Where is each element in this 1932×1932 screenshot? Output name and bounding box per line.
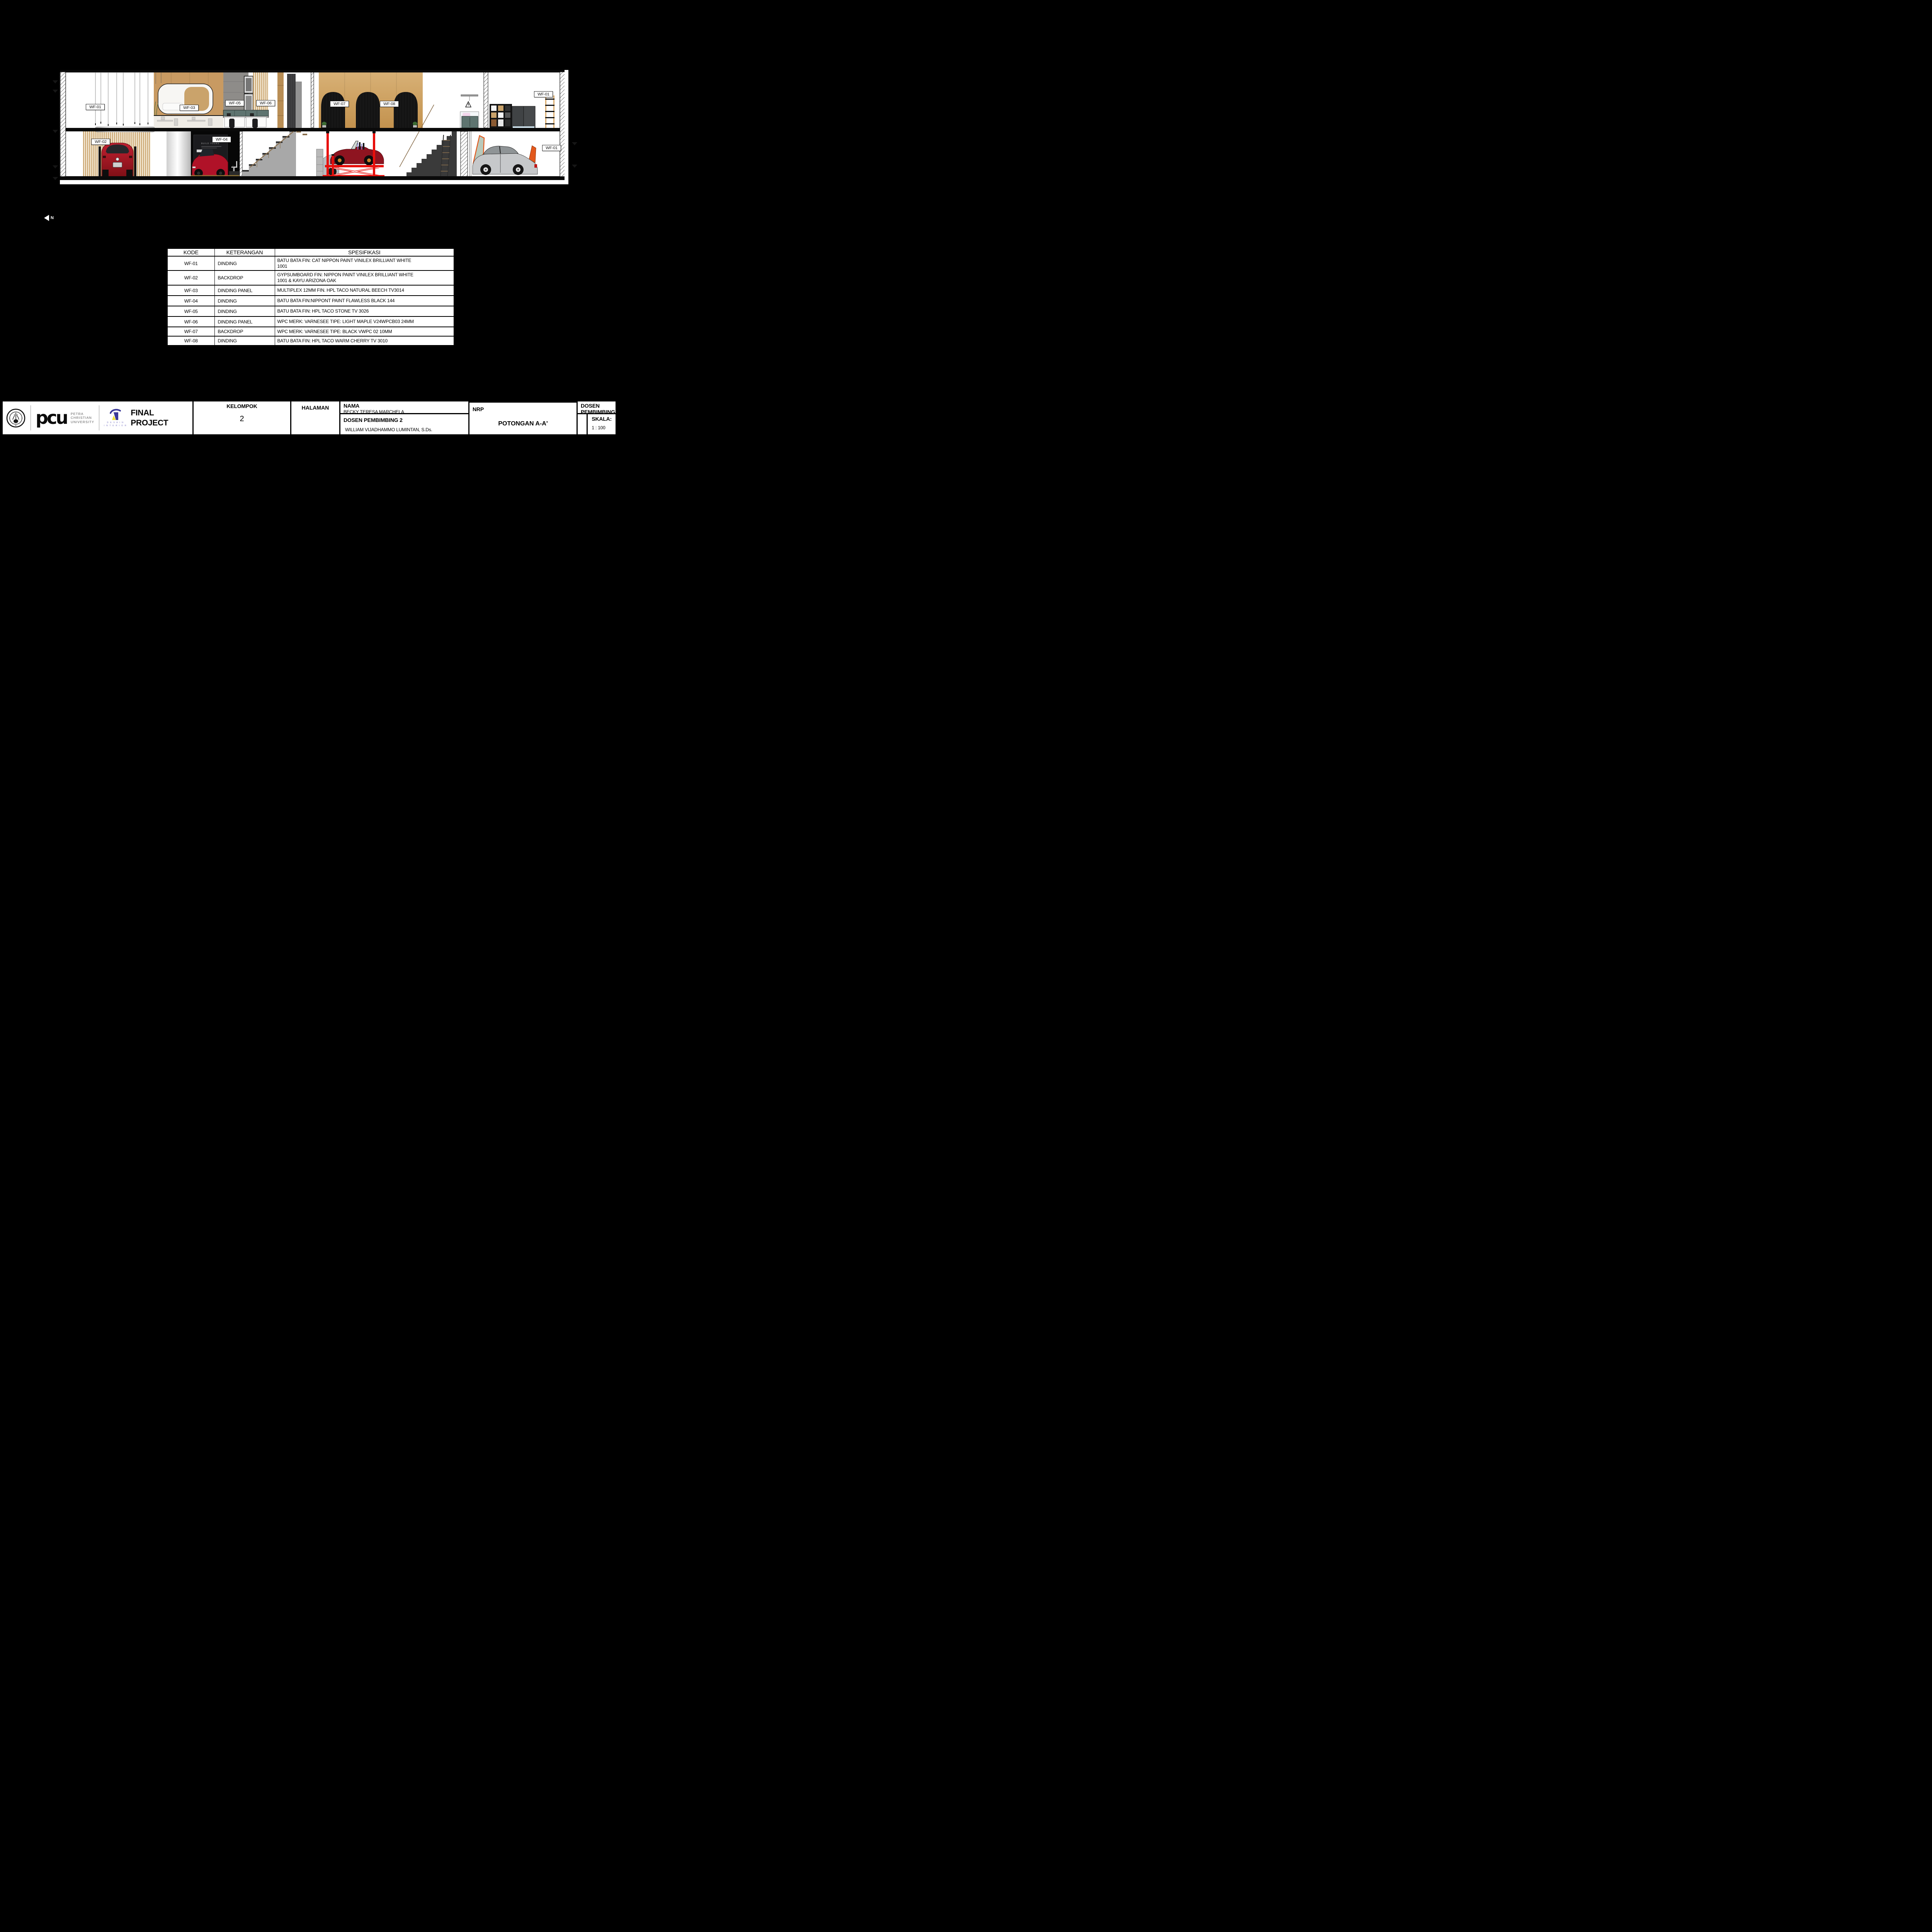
halaman-label: HALAMAN bbox=[302, 405, 329, 434]
cell-spes: GYPSUMBOARD FIN: NIPPON PAINT VINILEX BR… bbox=[275, 270, 454, 285]
sheet-canvas: BUILD YOURS bbox=[0, 0, 618, 437]
dosen2-value: WILLIAM VIJADHAMMO LUMINTAN, S.Ds. bbox=[344, 427, 465, 432]
skala-label: SKALA: bbox=[592, 416, 612, 422]
nama-cell: NAMA BECKY TERESA MARCHELA bbox=[339, 401, 468, 413]
cell-ket: BACKDROP bbox=[214, 270, 275, 285]
table-row: WF-06DINDING PANELWPC MERK: VARNESEE TIP… bbox=[167, 316, 454, 327]
north-label: N bbox=[51, 216, 54, 220]
university-name: PETRA CHRISTIAN UNIVERSITY bbox=[71, 412, 94, 424]
kelompok-label: KELOMPOK bbox=[226, 403, 257, 409]
desain-interior-mark-icon bbox=[109, 408, 122, 422]
column-header-spesifikasi: SPESIFIKASI bbox=[275, 248, 454, 256]
column-header-kode: KODE bbox=[167, 248, 214, 256]
cell-kode: WF-08 bbox=[167, 336, 214, 345]
wall-finish-callout: WF-01 bbox=[86, 104, 105, 110]
dosen1-label: DOSEN PEMBIMBING 1 bbox=[581, 403, 612, 413]
logo-divider bbox=[99, 405, 99, 430]
university-seal-logo bbox=[6, 408, 26, 428]
cell-kode: WF-03 bbox=[167, 285, 214, 296]
dosen2-label: DOSEN PEMBIMBING 2 bbox=[344, 417, 465, 423]
table-row: WF-03DINDING PANELMULTIPLEX 12MM FIN. HP… bbox=[167, 285, 454, 296]
skala-cell: SKALA: 1 : 100 bbox=[577, 413, 616, 434]
level-marker bbox=[53, 165, 58, 168]
cell-spes: WPC MERK: VARNESEE TIPE: BLACK VWPC 02 1… bbox=[275, 327, 454, 336]
cell-spes: WPC MERK: VARNESEE TIPE: LIGHT MAPLE V24… bbox=[275, 316, 454, 327]
table-row: WF-02BACKDROPGYPSUMBOARD FIN: NIPPON PAI… bbox=[167, 270, 454, 285]
wall-finish-callout: WF-06 bbox=[256, 100, 275, 106]
cell-spes: MULTIPLEX 12MM FIN. HPL TACO NATURAL BEE… bbox=[275, 285, 454, 296]
level-marker bbox=[572, 142, 577, 145]
dosen2-cell: DOSEN PEMBIMBING 2 WILLIAM VIJADHAMMO LU… bbox=[339, 413, 468, 434]
halaman-cell: HALAMAN bbox=[290, 401, 339, 434]
wall-finish-callout: WF-01 bbox=[542, 145, 561, 151]
cell-ket: DINDING bbox=[214, 296, 275, 306]
table-row: WF-07BACKDROPWPC MERK: VARNESEE TIPE: BL… bbox=[167, 327, 454, 336]
cell-kode: WF-01 bbox=[167, 256, 214, 270]
cell-kode: WF-02 bbox=[167, 270, 214, 285]
table-row: WF-01DINDINGBATU BATA FIN: CAT NIPPON PA… bbox=[167, 256, 454, 270]
cell-ket: DINDING PANEL bbox=[214, 285, 275, 296]
empty-cell bbox=[578, 414, 588, 434]
final-project-title: FINAL PROJECT bbox=[131, 408, 168, 427]
sheet-title: POTONGAN A-A' bbox=[498, 420, 548, 427]
table-row: WF-04DINDINGBATU BATA FIN:NIPPONT PAINT … bbox=[167, 296, 454, 306]
cell-spes: BATU BATA FIN:NIPPONT PAINT FLAWLESS BLA… bbox=[275, 296, 454, 306]
cell-ket: DINDING PANEL bbox=[214, 316, 275, 327]
pcu-wordmark-logo: pcu bbox=[36, 411, 67, 425]
cell-spes: BATU BATA FIN: HPL TACO WARM CHERRY TV 3… bbox=[275, 336, 454, 345]
final-project-line1: FINAL bbox=[131, 408, 168, 418]
level-marker bbox=[53, 90, 58, 93]
wall-finish-callout: WF-08 bbox=[380, 101, 399, 107]
kelompok-cell: KELOMPOK 2 bbox=[192, 401, 290, 434]
cell-ket: BACKDROP bbox=[214, 327, 275, 336]
wall-finish-callout: WF-03 bbox=[180, 105, 199, 111]
logo-divider bbox=[31, 405, 31, 430]
desain-interior-text-line2: I N T E R I O R bbox=[104, 425, 127, 428]
cell-ket: DINDING bbox=[214, 336, 275, 345]
wall-finish-callout: WF-05 bbox=[225, 100, 244, 106]
cell-spes: BATU BATA FIN: CAT NIPPON PAINT VINILEX … bbox=[275, 256, 454, 270]
wall-finish-callout: WF-02 bbox=[91, 139, 110, 145]
level-marker bbox=[53, 130, 58, 133]
materials-table-header: KODEKETERANGANSPESIFIKASI bbox=[167, 248, 454, 256]
nama-value: BECKY TERESA MARCHELA bbox=[344, 409, 465, 413]
level-marker bbox=[53, 177, 58, 180]
cell-kode: WF-04 bbox=[167, 296, 214, 306]
north-indicator: N bbox=[44, 215, 54, 221]
column-header-keterangan: KETERANGAN bbox=[214, 248, 275, 256]
desain-interior-text-line1: D E S A I N bbox=[107, 422, 124, 425]
title-block: pcu PETRA CHRISTIAN UNIVERSITY D E S A I… bbox=[2, 400, 617, 435]
showroom-screen-text: BUILD YOURS bbox=[201, 143, 219, 145]
sheet-title-cell: POTONGAN A-A' bbox=[468, 413, 577, 434]
level-marker bbox=[572, 165, 577, 168]
nrp-cell: NRP E11190058 bbox=[468, 401, 577, 413]
cell-ket: DINDING bbox=[214, 306, 275, 316]
table-row: WF-08DINDINGBATU BATA FIN: HPL TACO WARM… bbox=[167, 336, 454, 345]
wall-finish-callout: WF-07 bbox=[330, 101, 349, 107]
materials-table: KODEKETERANGANSPESIFIKASI WF-01DINDINGBA… bbox=[167, 248, 454, 346]
level-marker bbox=[53, 80, 58, 83]
section-drawing-graphic: BUILD YOURS bbox=[60, 70, 568, 184]
desain-interior-logo: D E S A I N I N T E R I O R bbox=[104, 408, 127, 427]
cell-spes: BATU BATA FIN: HPL TACO STONE TV 3026 bbox=[275, 306, 454, 316]
nrp-label: NRP bbox=[473, 406, 573, 412]
section-drawing: BUILD YOURS bbox=[60, 70, 568, 184]
cell-kode: WF-06 bbox=[167, 316, 214, 327]
wall-finish-callout: WF-01 bbox=[534, 91, 553, 97]
kelompok-value: 2 bbox=[240, 415, 244, 423]
nama-label: NAMA bbox=[344, 403, 465, 409]
skala-value: 1 : 100 bbox=[592, 425, 612, 430]
north-arrow-icon bbox=[44, 215, 49, 221]
dosen1-cell: DOSEN PEMBIMBING 1 RONALD H.I.SITINDJAK … bbox=[577, 401, 616, 413]
title-block-logos-cell: pcu PETRA CHRISTIAN UNIVERSITY D E S A I… bbox=[3, 401, 192, 434]
final-project-line2: PROJECT bbox=[131, 418, 168, 428]
cell-kode: WF-07 bbox=[167, 327, 214, 336]
table-row: WF-05DINDINGBATU BATA FIN: HPL TACO STON… bbox=[167, 306, 454, 316]
wall-finish-callout: WF-04 bbox=[212, 136, 231, 143]
cell-kode: WF-05 bbox=[167, 306, 214, 316]
cell-ket: DINDING bbox=[214, 256, 275, 270]
